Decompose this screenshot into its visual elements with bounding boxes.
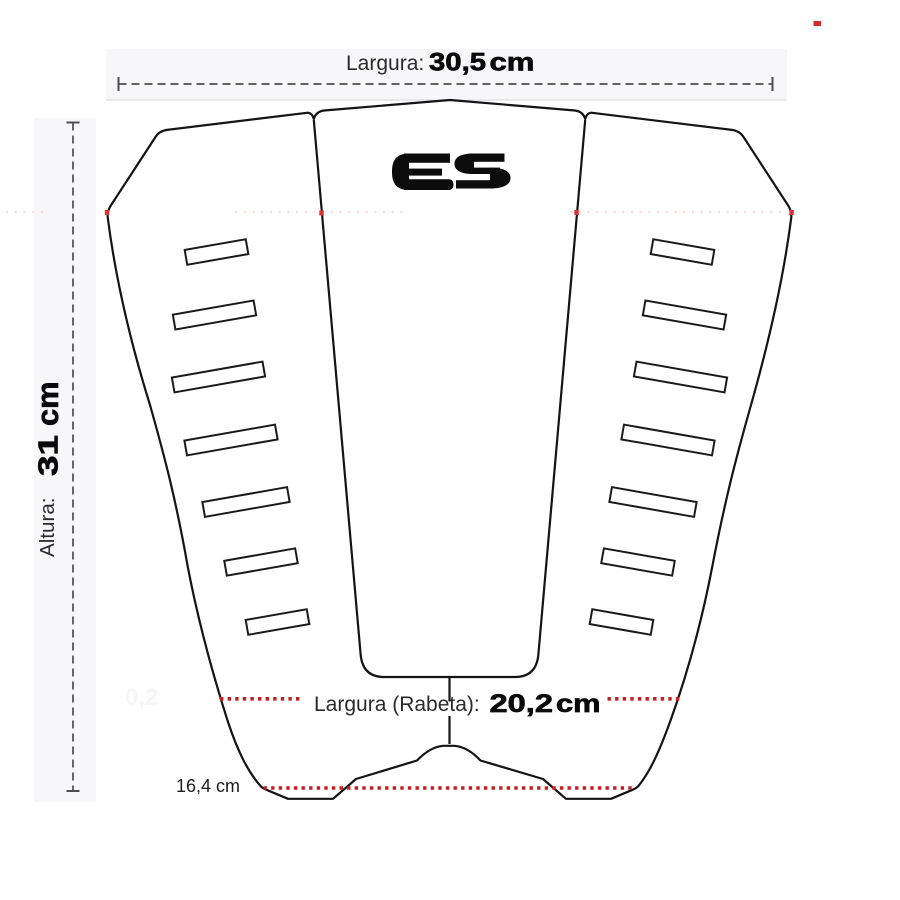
svg-text:31: 31 xyxy=(33,435,64,476)
svg-text:cm: cm xyxy=(490,49,535,77)
svg-text:0,2: 0,2 xyxy=(125,684,158,711)
svg-text:Altura:: Altura: xyxy=(37,498,59,558)
svg-text:Largura:: Largura: xyxy=(346,52,424,75)
svg-text:cm: cm xyxy=(31,382,65,427)
svg-text:cm: cm xyxy=(556,690,601,718)
svg-text:16,4 cm: 16,4 cm xyxy=(176,776,240,796)
svg-text:30,5: 30,5 xyxy=(429,49,486,77)
svg-text:20,2: 20,2 xyxy=(490,690,554,718)
svg-text:Largura (Rabeta):: Largura (Rabeta): xyxy=(314,693,480,716)
